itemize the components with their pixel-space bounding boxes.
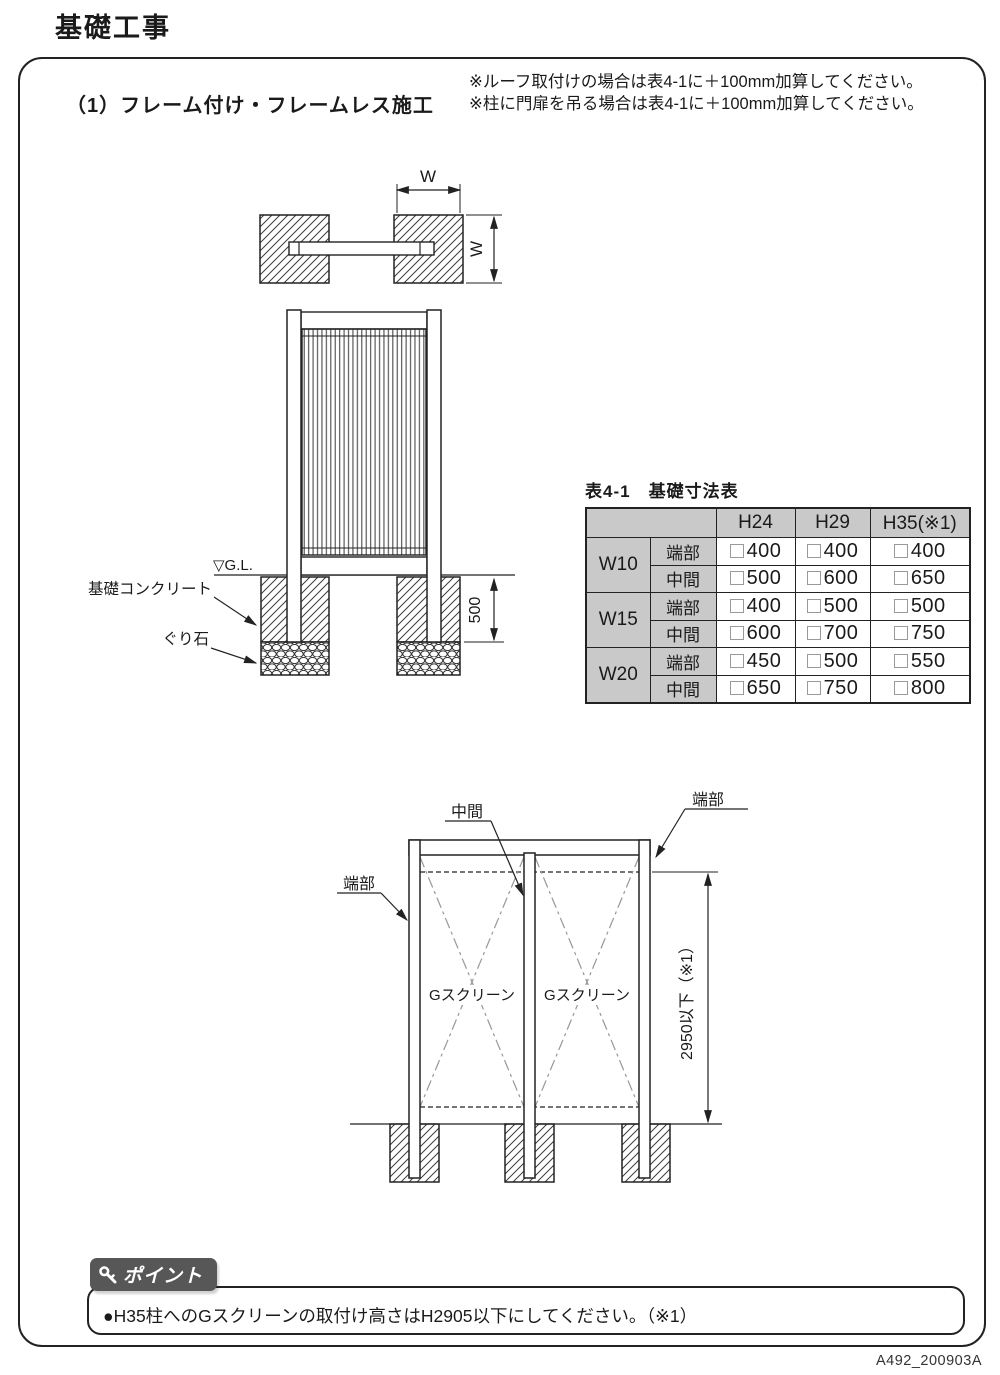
- depth-dim-label: 500: [467, 597, 484, 624]
- point-badge-label: ポイント: [123, 1261, 203, 1288]
- col-header-h35: H35(※1): [870, 508, 970, 538]
- table-cell: 500: [716, 565, 795, 593]
- square-dim-icon: [894, 571, 908, 585]
- ground-level-label: ▽G.L.: [213, 557, 253, 574]
- key-icon: [98, 1265, 118, 1285]
- table-row: W15 端部 400 500 500: [586, 593, 970, 621]
- square-dim-icon: [730, 544, 744, 558]
- gscreen-label-2: Gスクリーン: [544, 987, 630, 1004]
- square-dim-icon: [807, 654, 821, 668]
- square-dim-icon: [730, 654, 744, 668]
- dim-value: 400: [747, 595, 782, 617]
- square-dim-icon: [807, 599, 821, 613]
- row-part: 中間: [650, 565, 716, 593]
- dim-value: 500: [747, 567, 782, 589]
- end-post-label-left: 端部: [343, 875, 375, 893]
- gravel-label: ぐり石: [162, 631, 209, 648]
- post-right: [427, 310, 441, 642]
- concrete-label: 基礎コンクリート: [88, 580, 212, 598]
- middle-post-label: 中間: [451, 803, 483, 821]
- square-dim-icon: [894, 599, 908, 613]
- dim-value: 400: [824, 540, 859, 562]
- plan-view: W W: [260, 167, 502, 283]
- elevation-view: 500 ▽G.L. 基礎コンクリート ぐり石: [88, 310, 515, 675]
- point-badge: ポイント: [90, 1258, 217, 1291]
- end-post-label-right: 端部: [692, 791, 724, 809]
- top-rail: [301, 312, 427, 329]
- square-dim-icon: [807, 571, 821, 585]
- square-dim-icon: [807, 626, 821, 640]
- dim-value: 700: [824, 622, 859, 644]
- row-part: 端部: [650, 593, 716, 621]
- square-dim-icon: [894, 544, 908, 558]
- table-diagonal-cell: [586, 508, 716, 538]
- post-left: [287, 310, 301, 642]
- table-row: W10 端部 400 400 400: [586, 538, 970, 566]
- square-dim-icon: [894, 626, 908, 640]
- gscreen-label-1: Gスクリーン: [429, 987, 515, 1004]
- row-part: 端部: [650, 538, 716, 566]
- dim-value: 400: [911, 540, 946, 562]
- table-cell: 400: [716, 593, 795, 621]
- square-dim-icon: [807, 544, 821, 558]
- gravel-bed-left: [261, 642, 329, 675]
- dim-value: 650: [911, 567, 946, 589]
- table-cell: 650: [870, 565, 970, 593]
- row-group-w15: W15: [586, 593, 650, 648]
- table-cell: 700: [795, 620, 870, 648]
- table-cell: 400: [795, 538, 870, 566]
- square-dim-icon: [730, 626, 744, 640]
- technical-diagram: W W 500: [20, 59, 988, 1349]
- table-cell: 450: [716, 648, 795, 676]
- table-cell: 600: [795, 565, 870, 593]
- row-group-w10: W10: [586, 538, 650, 593]
- dim-value: 750: [911, 622, 946, 644]
- table-cell: 400: [870, 538, 970, 566]
- point-box: ●H35柱へのGスクリーンの取付け高さはH2905以下にしてください。（※1）: [87, 1286, 965, 1335]
- row-part: 端部: [650, 648, 716, 676]
- foundation-dimension-table: 表4-1 基礎寸法表 H24 H29 H35(※1) W10 端部 400 40…: [585, 477, 969, 704]
- table-title: 表4-1 基礎寸法表: [585, 477, 969, 502]
- table-cell: 800: [870, 675, 970, 703]
- lower-diagram: Gスクリーン Gスクリーン 2950以下（※1） 中間 端部 端部: [337, 791, 748, 1182]
- table-cell: 600: [716, 620, 795, 648]
- col-header-h29: H29: [795, 508, 870, 538]
- lower-post-right: [639, 840, 650, 1178]
- table-cell: 400: [716, 538, 795, 566]
- dim-value: 500: [911, 595, 946, 617]
- screen-plan-bar: [289, 242, 434, 255]
- row-group-w20: W20: [586, 648, 650, 704]
- table-cell: 500: [795, 648, 870, 676]
- height-dim-label: 2950以下（※1）: [678, 938, 696, 1060]
- page-title: 基礎工事: [55, 6, 171, 45]
- bottom-rail: [301, 557, 427, 575]
- table-cell: 750: [870, 620, 970, 648]
- table-row: W20 端部 450 500 550: [586, 648, 970, 676]
- dim-value: 550: [911, 650, 946, 672]
- dim-value: 600: [747, 622, 782, 644]
- dim-value: 650: [747, 677, 782, 699]
- dim-value: 500: [824, 595, 859, 617]
- square-dim-icon: [894, 654, 908, 668]
- dim-label-w-top: W: [420, 167, 436, 186]
- square-dim-icon: [894, 681, 908, 695]
- dim-value: 450: [747, 650, 782, 672]
- dim-value: 750: [824, 677, 859, 699]
- dim-value: 800: [911, 677, 946, 699]
- row-part: 中間: [650, 620, 716, 648]
- row-part: 中間: [650, 675, 716, 703]
- louver-panel: [302, 329, 426, 555]
- table-cell: 750: [795, 675, 870, 703]
- square-dim-icon: [730, 599, 744, 613]
- table-cell: 500: [870, 593, 970, 621]
- dim-label-w-side: W: [467, 241, 486, 257]
- square-dim-icon: [807, 681, 821, 695]
- lower-post-left: [409, 840, 420, 1178]
- square-dim-icon: [730, 571, 744, 585]
- table-cell: 500: [795, 593, 870, 621]
- content-frame: （1）フレーム付け・フレームレス施工 ※ルーフ取付けの場合は表4-1に＋100m…: [18, 57, 986, 1347]
- lower-post-middle: [524, 853, 535, 1178]
- table-cell: 650: [716, 675, 795, 703]
- point-text: ●H35柱へのGスクリーンの取付け高さはH2905以下にしてください。（※1）: [103, 1303, 697, 1328]
- table-cell: 550: [870, 648, 970, 676]
- dim-value: 400: [747, 540, 782, 562]
- document-code: A492_200903A: [876, 1353, 982, 1369]
- square-dim-icon: [730, 681, 744, 695]
- col-header-h24: H24: [716, 508, 795, 538]
- dim-value: 500: [824, 650, 859, 672]
- dim-value: 600: [824, 567, 859, 589]
- gravel-bed-right: [397, 642, 460, 675]
